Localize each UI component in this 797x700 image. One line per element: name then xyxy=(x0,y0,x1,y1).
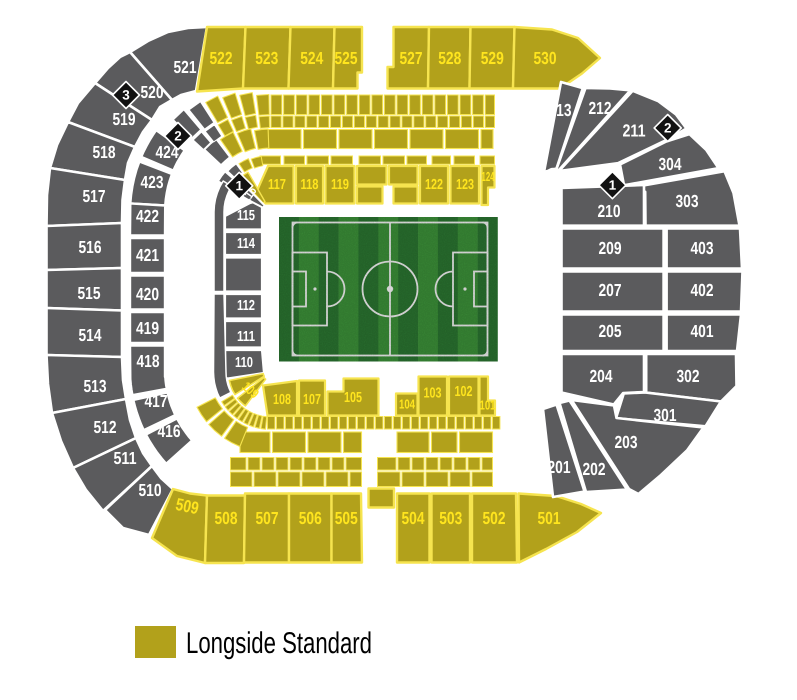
svg-text:304: 304 xyxy=(658,154,681,174)
svg-text:501: 501 xyxy=(537,508,560,528)
svg-text:523: 523 xyxy=(255,48,278,68)
svg-text:418: 418 xyxy=(136,351,159,371)
svg-text:203: 203 xyxy=(614,432,637,452)
svg-text:510: 510 xyxy=(138,480,161,500)
svg-text:527: 527 xyxy=(399,48,422,68)
svg-text:2: 2 xyxy=(174,128,182,143)
svg-text:114: 114 xyxy=(237,236,255,252)
svg-text:201: 201 xyxy=(547,457,570,477)
svg-text:524: 524 xyxy=(300,48,323,68)
svg-text:419: 419 xyxy=(136,318,159,338)
svg-text:211: 211 xyxy=(622,120,645,140)
svg-text:117: 117 xyxy=(268,177,286,193)
svg-text:420: 420 xyxy=(136,284,159,304)
svg-text:118: 118 xyxy=(300,177,318,193)
svg-text:416: 416 xyxy=(157,421,180,441)
svg-text:212: 212 xyxy=(588,98,611,118)
svg-text:512: 512 xyxy=(93,417,116,437)
svg-text:303: 303 xyxy=(675,191,698,211)
svg-text:528: 528 xyxy=(438,48,461,68)
svg-text:102: 102 xyxy=(454,384,472,400)
svg-text:519: 519 xyxy=(112,109,135,129)
svg-text:108: 108 xyxy=(273,392,291,408)
svg-text:111: 111 xyxy=(237,329,255,345)
svg-text:210: 210 xyxy=(597,201,620,221)
svg-text:504: 504 xyxy=(401,508,424,528)
svg-text:124: 124 xyxy=(481,169,494,184)
svg-text:207: 207 xyxy=(598,280,621,300)
svg-text:119: 119 xyxy=(331,177,349,193)
svg-text:122: 122 xyxy=(425,177,443,193)
svg-text:105: 105 xyxy=(344,390,362,406)
svg-text:Longside Standard: Longside Standard xyxy=(186,627,372,660)
svg-text:422: 422 xyxy=(136,206,159,226)
svg-text:202: 202 xyxy=(582,459,605,479)
svg-text:525: 525 xyxy=(334,48,357,68)
svg-text:2: 2 xyxy=(664,120,672,135)
svg-text:506: 506 xyxy=(299,508,322,528)
svg-text:1: 1 xyxy=(609,178,617,193)
svg-text:516: 516 xyxy=(78,237,101,257)
svg-text:520: 520 xyxy=(140,82,163,102)
svg-text:529: 529 xyxy=(481,48,504,68)
svg-text:511: 511 xyxy=(113,448,136,468)
svg-text:402: 402 xyxy=(690,280,713,300)
svg-text:204: 204 xyxy=(589,366,612,386)
svg-text:417: 417 xyxy=(144,391,167,411)
svg-text:515: 515 xyxy=(77,283,100,303)
svg-text:110: 110 xyxy=(235,355,253,371)
svg-text:517: 517 xyxy=(82,186,105,206)
svg-text:1: 1 xyxy=(235,178,243,193)
svg-text:209: 209 xyxy=(598,238,621,258)
svg-text:104: 104 xyxy=(399,396,416,411)
svg-text:3: 3 xyxy=(122,87,130,102)
svg-text:505: 505 xyxy=(335,508,358,528)
svg-text:101: 101 xyxy=(479,397,495,412)
svg-text:103: 103 xyxy=(423,385,441,401)
svg-text:401: 401 xyxy=(690,321,713,341)
svg-text:518: 518 xyxy=(92,142,115,162)
svg-text:115: 115 xyxy=(237,208,255,224)
svg-text:107: 107 xyxy=(303,392,321,408)
svg-text:123: 123 xyxy=(456,177,474,193)
svg-text:423: 423 xyxy=(140,172,163,192)
svg-text:530: 530 xyxy=(533,48,556,68)
svg-text:502: 502 xyxy=(482,508,505,528)
svg-text:513: 513 xyxy=(83,376,106,396)
svg-text:205: 205 xyxy=(598,321,621,341)
svg-text:507: 507 xyxy=(255,508,278,528)
svg-text:514: 514 xyxy=(78,325,101,345)
svg-text:508: 508 xyxy=(214,508,237,528)
svg-text:403: 403 xyxy=(690,238,713,258)
svg-text:302: 302 xyxy=(676,366,699,386)
svg-text:112: 112 xyxy=(237,298,255,314)
svg-text:421: 421 xyxy=(136,245,159,265)
svg-text:213: 213 xyxy=(548,100,571,120)
svg-text:521: 521 xyxy=(173,57,196,77)
svg-text:503: 503 xyxy=(439,508,462,528)
svg-text:522: 522 xyxy=(209,48,232,68)
